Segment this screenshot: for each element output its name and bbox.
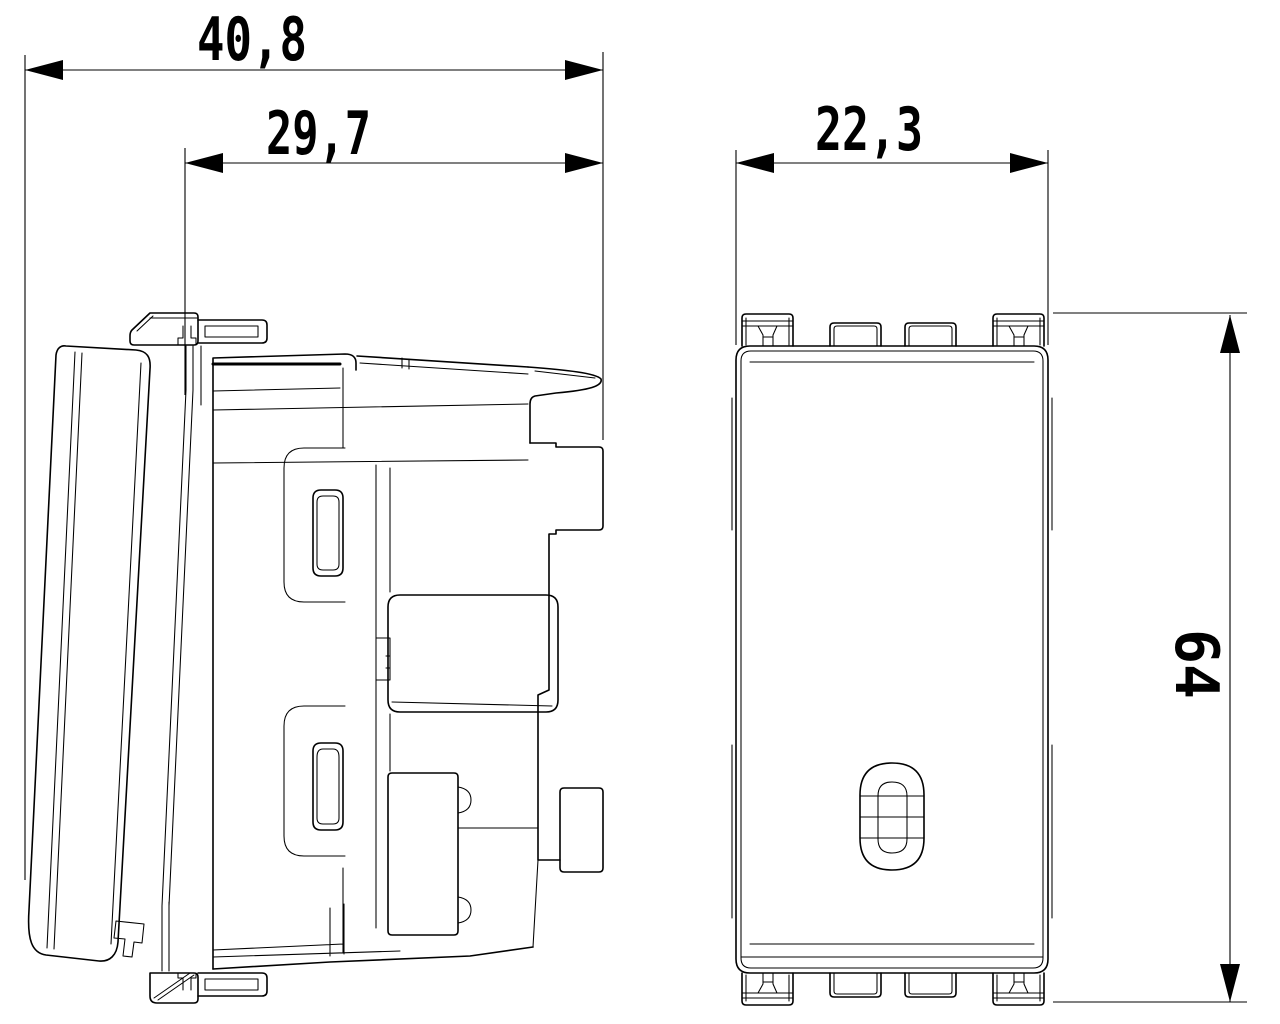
top-right-clip-detail xyxy=(993,318,1044,346)
top-tabs-inner xyxy=(834,326,952,346)
terminal-screws xyxy=(458,787,471,923)
bottom-tabs-inner xyxy=(834,973,952,994)
top-right-clip xyxy=(993,314,1044,346)
bottom-claw-arm xyxy=(198,973,267,996)
upper-recess xyxy=(284,448,345,602)
dimension-body-depth: 29,7 xyxy=(185,99,603,395)
bottom-claw-arm-inner xyxy=(205,979,258,990)
front-view xyxy=(732,314,1052,1005)
front-body-inner xyxy=(741,351,1043,968)
arrow-right-icon xyxy=(565,153,603,173)
arrow-left-icon xyxy=(736,153,774,173)
fixing-tongue xyxy=(528,367,601,443)
bottom-right-clip xyxy=(993,973,1044,1005)
front-body-outline xyxy=(736,346,1048,973)
indicator-lens-lines xyxy=(860,796,924,838)
top-left-clip xyxy=(742,314,793,346)
top-claw-arm-inner xyxy=(205,326,258,337)
body-top-detail xyxy=(343,358,528,448)
body-top xyxy=(213,354,528,969)
bottom-left-clip xyxy=(742,973,793,1005)
top-claw-arm xyxy=(198,320,267,343)
dim-front-width-value: 22,3 xyxy=(815,95,923,165)
lower-window-inner xyxy=(317,749,339,824)
extension-lines xyxy=(25,52,603,880)
inner-terminal-block xyxy=(388,773,458,935)
arrow-right-icon xyxy=(1010,153,1048,173)
extension-lines xyxy=(736,150,1048,345)
arrow-left-icon xyxy=(25,60,63,80)
lower-terminal-block xyxy=(560,788,603,872)
dimension-front-width: 22,3 xyxy=(736,95,1048,345)
bottom-left-clip-detail xyxy=(742,973,793,1001)
arrow-right-icon xyxy=(565,60,603,80)
bottom-tabs xyxy=(830,973,956,997)
body-bottom xyxy=(213,947,533,969)
fixing-tongue-inner xyxy=(535,371,595,378)
body-bands xyxy=(213,388,528,463)
central-recess xyxy=(388,595,558,712)
upper-window-inner xyxy=(317,496,339,570)
rocker-outline xyxy=(29,346,151,961)
top-left-clip-detail xyxy=(742,318,793,346)
arrow-top-icon xyxy=(1220,315,1240,353)
bottom-claw-detail xyxy=(154,973,196,1000)
terminal-steps xyxy=(458,828,538,947)
arrow-left-icon xyxy=(185,153,223,173)
frame-wall xyxy=(162,346,201,971)
dimension-front-height: 64 xyxy=(1053,313,1247,1002)
technical-drawing-page: 40,8 29,7 22,3 64 xyxy=(0,0,1280,1024)
arrow-bottom-icon xyxy=(1220,964,1240,1002)
right-profile xyxy=(530,443,603,860)
dim-overall-depth-value: 40,8 xyxy=(197,5,307,75)
dim-front-height-value: 64 xyxy=(1161,629,1231,699)
bottom-right-clip-detail xyxy=(993,973,1044,1001)
lower-recess xyxy=(284,706,345,856)
dim-body-depth-value: 29,7 xyxy=(266,99,371,169)
side-flex-clips xyxy=(732,398,1052,918)
central-recess-detail xyxy=(376,465,552,928)
body-bottom-detail xyxy=(213,868,400,957)
switch-module-drawing: 40,8 29,7 22,3 64 xyxy=(0,0,1280,1024)
rocker-inner-lines xyxy=(47,352,141,949)
top-claw-detail xyxy=(137,316,198,345)
front-panel-lines xyxy=(741,362,1043,957)
side-view xyxy=(29,313,603,1003)
